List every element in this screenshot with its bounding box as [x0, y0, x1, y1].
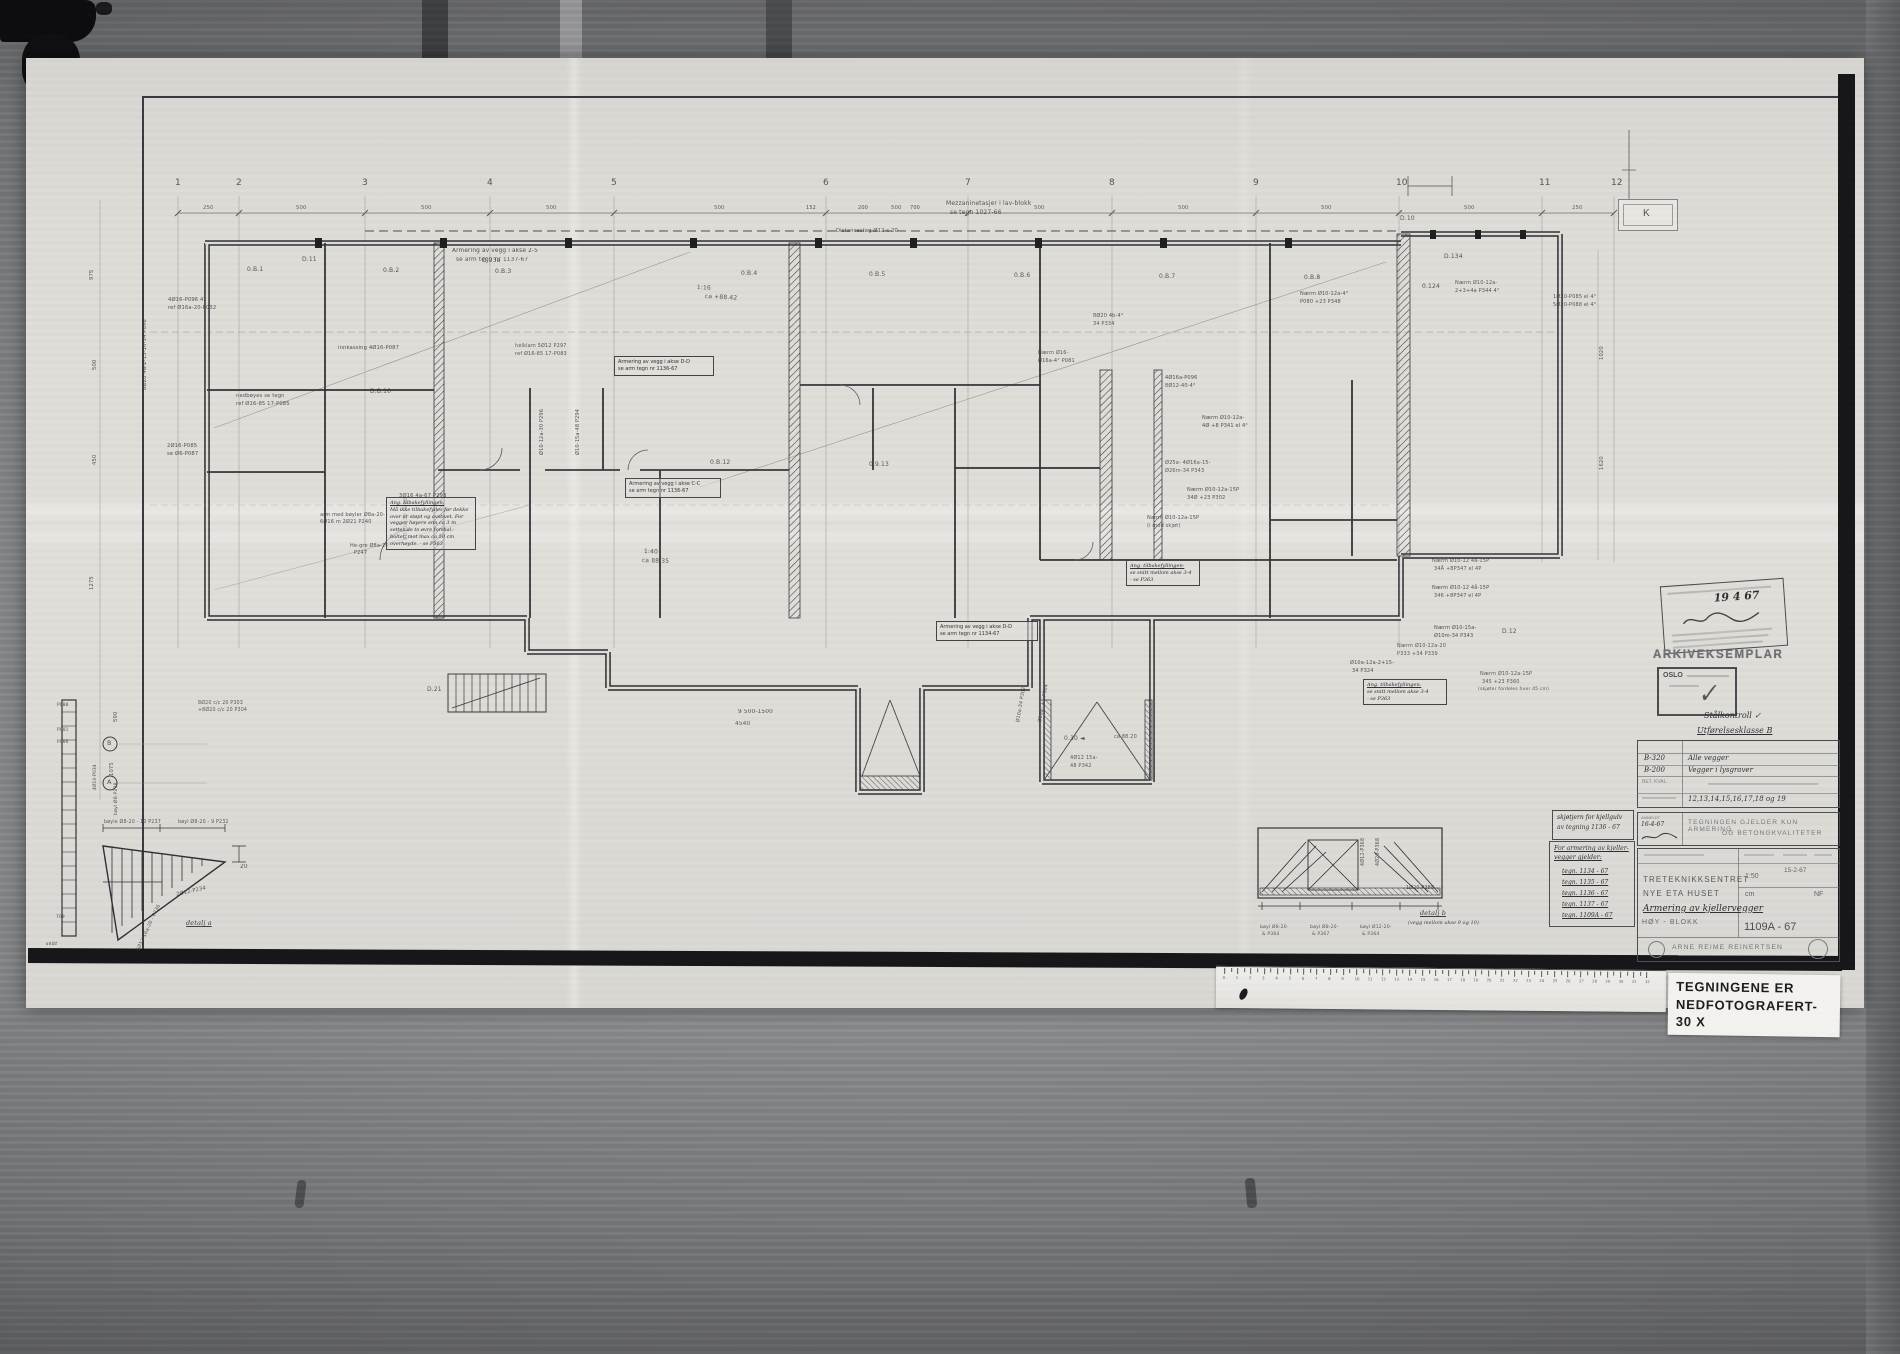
ruler-tick [1501, 971, 1502, 977]
annotation-text: 500 [93, 360, 98, 370]
ruler-number: 18 [1460, 977, 1465, 982]
ruler-number: 4 [1275, 975, 1277, 980]
photographed-blueprint: K Mezzaninetasjer i lav-blokkse tegn 102… [0, 0, 1900, 1354]
grid-dimension: 500 [1034, 205, 1045, 211]
ruler-number: 3 [1262, 975, 1264, 980]
ruler-number: 28 [1592, 978, 1597, 983]
boxed-note-line: bolter, mot max ca 50 cm [390, 534, 472, 541]
annotation-text: 4Ø12-P368 [1361, 838, 1366, 866]
grid-column-number: 6 [823, 178, 829, 188]
annotation-text: se Ø6-P087 [167, 452, 198, 457]
annotation-text: Ø25a- 4Ø16a-15- [1165, 461, 1211, 466]
boxed-note-line: se arm tegn nr 1136-67 [629, 488, 717, 495]
ruler-tick [1402, 970, 1403, 974]
annotation-text: detalj b [1420, 910, 1446, 917]
annotation-text: B [107, 740, 112, 747]
ruler-tick [1468, 970, 1469, 974]
boxed-note: Armering av vegg i akse D-Dse arm tegn n… [614, 356, 714, 376]
annotation-text: 1Ø20-P388 [1406, 886, 1434, 891]
annotation-text: D.B.10 [370, 389, 391, 395]
grid-column-number: 11 [1539, 178, 1550, 188]
annotation-text: 34Å +8P347 el 4P [1434, 567, 1482, 572]
ruler-tick [1257, 968, 1258, 972]
annotation-text: se arm tegn nr 1137-67 [456, 257, 528, 263]
annotation-text: 200 [858, 206, 868, 211]
grid-column-number: 5 [611, 178, 617, 188]
company-name: ARNE REIME REINERTSEN [1672, 944, 1783, 951]
ruler-tick [1614, 972, 1615, 976]
annotation-text: 8Ø20 4a-2-15-16-14 P098 [143, 319, 148, 390]
ruler-tick [1640, 972, 1641, 976]
ruler-number: 7 [1315, 976, 1317, 981]
ruler-number: 30 [1619, 979, 1624, 984]
subject-handwritten: Armering av kjellervegger [1643, 904, 1763, 914]
annotation-text: 6Ø16 m 2Ø21 P240 [320, 520, 372, 525]
grid-dimension: 500 [1321, 205, 1332, 211]
ruler-tick [1495, 971, 1496, 975]
ruler-tick [1528, 971, 1529, 977]
ruler-number: 27 [1579, 978, 1584, 983]
annotation-text: 1Ø20-P085 el 4° [1553, 295, 1596, 300]
revision-table: B-320 Alle vegger B-200 Vegger i lysgrav… [1637, 740, 1840, 808]
annotation-text: 48 P342 [1070, 764, 1092, 769]
ruler-tick [1237, 968, 1238, 974]
annotation-text: 0.B.5 [869, 272, 885, 278]
annotation-text: 8Ø20 c/c 20 P303 [198, 701, 243, 706]
annotation-text: helklam 5Ø12 P297 [515, 344, 567, 349]
annotation-text: D.12 [1502, 629, 1517, 635]
date-value: 15-2-67 [1784, 867, 1806, 874]
annotation-text: 4Ø16-P096 4° [168, 298, 206, 303]
block-name: HØY - BLOKK [1642, 919, 1699, 926]
side-note-2-title1: For armering av kjeller- [1554, 845, 1629, 852]
oslo-stamp-check: ✓ [1695, 678, 1720, 710]
annotation-text: 1620 [1600, 456, 1605, 470]
ruler-number: 15 [1421, 977, 1426, 982]
boxed-note: Ang. tilbakefyllingen.Må ikke tilbakefyl… [386, 497, 476, 550]
ruler-number: 24 [1539, 978, 1544, 983]
annotation-text: D.11 [302, 257, 317, 263]
annotation-text: 4540 [735, 721, 750, 727]
title-block: TRETEKNIKKSENTRET NYE ETA HUSET 1:50 cm … [1637, 848, 1840, 962]
annotation-text: (vegg mellom akse 9 og 10) [1408, 921, 1479, 926]
annotation-text: & P364 [1362, 933, 1379, 938]
scale-value: 1:50 [1745, 873, 1759, 880]
notice-row: ANMELDT 16-4-67 TEGNINGEN GJELDER KUN AR… [1637, 812, 1840, 846]
steel-control-note: Stålkontroll ✓ [1704, 711, 1761, 720]
ruler-tick [1567, 971, 1568, 977]
annotation-text: ca +88.42 [705, 294, 738, 302]
annotation-text: 0.B.12 [710, 460, 730, 466]
annotation-text: Nærm Ø10-15a- [1434, 626, 1476, 631]
annotation-text: 0.B.7 [1159, 274, 1175, 280]
annotation-text: P247 [354, 551, 367, 556]
annotation-text: 345 +23 P360 [1482, 680, 1520, 685]
annotation-text: se tegn 1027-66 [950, 210, 1002, 216]
boxed-note: Armering av vegg i akse C-Cse arm tegn n… [625, 478, 721, 498]
ruler-tick [1244, 968, 1245, 972]
scale-ruler: 0123456789101112131415161718192021222324… [1216, 966, 1666, 1012]
ruler-number: 6 [1302, 976, 1304, 981]
ruler-tick [1416, 970, 1417, 974]
ruler-tick [1449, 970, 1450, 976]
annotation-text: +8Ø20 c/c 20 P304 [198, 708, 247, 713]
annotation-text: Nærm Ø10-12a-20 [1397, 644, 1446, 649]
annotation-text: Ø10a-34 P302 [1016, 687, 1027, 723]
grid-column-number: 10 [1396, 178, 1407, 188]
grid-dimension: 500 [421, 205, 432, 211]
grid-dimension: 500 [714, 205, 725, 211]
annotation-text: nedbøyes se tegn [236, 394, 285, 399]
ruler-tick [1343, 969, 1344, 975]
annotation-text: 975 [90, 270, 95, 280]
ruler-tick [1310, 969, 1311, 973]
grid-column-number: 1 [175, 178, 181, 188]
ruler-number: 13 [1394, 977, 1399, 982]
grid-column-number: 8 [1109, 178, 1115, 188]
side-note-2-item: tegn. 1135 - 67 [1562, 877, 1613, 888]
ruler-tick [1607, 972, 1608, 978]
ruler-tick [1376, 969, 1377, 973]
side-note-box-2: For armering av kjeller- vegger gjelder:… [1549, 841, 1635, 927]
ruler-tick [1383, 969, 1384, 975]
ruler-tick [1264, 968, 1265, 974]
ruler-number: 8 [1328, 976, 1330, 981]
annotation-text: He-gre Ø8a-20 [350, 544, 389, 549]
annotation-text: 4Ø16a-P096 [1165, 376, 1197, 381]
annotation-text: 4Ø +8 P341 el 4° [1202, 424, 1248, 429]
annotation-text: 1075 [110, 762, 115, 776]
execution-class-note: Utførelsesklasse B [1697, 726, 1772, 735]
side-note-2-item: tegn. 1137 - 67 [1562, 899, 1613, 910]
notice-line2: OG BETONGKVALITETER [1722, 830, 1823, 837]
class-row2-value: Vegger i lysgraver [1688, 766, 1753, 774]
grid-column-number: 3 [362, 178, 368, 188]
annotation-text: Mezzaninetasjer i lav-blokk [946, 201, 1031, 207]
ruler-number: 11 [1368, 976, 1373, 981]
anmeldt-date: 16-4-67 [1641, 821, 1664, 828]
annotation-text: bøyl Ø12-20- [1360, 926, 1392, 931]
side-note-1-line1: skjøtjern for kjellgulv [1557, 814, 1622, 821]
annotation-text: 0.B.4 [741, 271, 757, 277]
annotation-text: 2Ø12-P234 [176, 886, 207, 898]
annotation-text: Ø10m-34 P343 [1434, 634, 1473, 639]
boxed-note: Armering av vegg i akse D-Dse arm tegn n… [936, 621, 1038, 641]
annotation-text: Nærm Ø16- [1038, 351, 1069, 356]
annotation-text: (skjøter fordeles hver 45 cm) [1478, 688, 1549, 693]
annotation-text: (i mod skjøt) [1147, 524, 1180, 529]
boxed-note-line: se snitt mellom akse 3-4 [1367, 689, 1443, 696]
ruler-tick [1284, 968, 1285, 972]
class-row1-code: B-320 [1644, 754, 1665, 762]
annotation-text: bøyl Ø8-20 - 9 P232 [178, 820, 229, 825]
annotation-text: 1275 [90, 576, 95, 590]
ruler-tick [1488, 970, 1489, 976]
annotation-text: 2+3+4a P344 4° [1455, 289, 1500, 294]
class-row2-code: B-200 [1644, 766, 1665, 774]
annotation-text: innkassing 4Ø16-P087 [338, 346, 399, 351]
boxed-note-line: vegger høyere enn ca 3 m [390, 520, 472, 527]
oslo-stamp-text: OSLO [1663, 672, 1683, 679]
ruler-tick [1475, 970, 1476, 976]
boxed-note-line: Ang. tilbakefyllingen. [390, 500, 472, 507]
ruler-mark [1238, 987, 1248, 1001]
annotation-text: Nærm Ø10-12a- [1455, 281, 1497, 286]
ruler-number: 14 [1407, 977, 1412, 982]
annotation-text: 1:40 [644, 549, 658, 556]
annotation-text: 5Ø20-P088 el 4° [1553, 303, 1596, 308]
side-note-1-line2: av tegning 1136 - 67 [1557, 824, 1620, 831]
unit-value: cm [1745, 891, 1754, 898]
boxed-note-line: se arm tegn nr 1136-67 [618, 366, 710, 373]
annotation-text: 6Ø12 16a-20 - P236 [136, 904, 162, 952]
annotation-text: Armering av vegg i akse 2-5 [452, 248, 538, 254]
side-note-2-title2: vegger gjelder: [1554, 854, 1602, 861]
annotation-text: arm med bøyler Ø8a-20- [320, 513, 385, 518]
annotation-text: A [107, 779, 112, 786]
annotation-text: 4Ø20-P368 [1376, 838, 1381, 866]
ruler-number: 17 [1447, 977, 1452, 982]
ruler-tick [1330, 969, 1331, 975]
ruler-tick [1363, 969, 1364, 973]
ruler-tick [1290, 969, 1291, 975]
annotation-text: 152 [806, 206, 816, 211]
ruler-tick [1633, 972, 1634, 978]
annotation-text: Ø16a-4° P081 [1038, 359, 1075, 364]
ruler-tick [1422, 970, 1423, 976]
boxed-note-line: - se P363 [1367, 696, 1443, 703]
ruler-tick [1534, 971, 1535, 975]
ruler-tick [1435, 970, 1436, 976]
ruler-tick [1627, 972, 1628, 976]
annotation-text: D.21 [427, 687, 442, 693]
ruler-tick [1231, 968, 1232, 972]
annotation-text: 0.B.8 [1304, 275, 1320, 281]
grid-dimension: 500 [296, 205, 307, 211]
date-stamp: 19 4 67 [1660, 578, 1788, 654]
ruler-tick [1356, 969, 1357, 975]
ruler-tick [1409, 970, 1410, 976]
annotation-text: 709 [56, 916, 65, 921]
ruler-tick [1389, 970, 1390, 974]
signature-squiggle [1681, 606, 1762, 630]
anmeldt-label: ANMELDT [1641, 815, 1660, 820]
grid-dimension: 250 [203, 205, 214, 211]
annotation-text: Nærm Ø10-12 4å-15P [1432, 586, 1489, 591]
firm-line1: TRETEKNIKKSENTRET [1643, 875, 1749, 884]
stamp-date-handwritten: 19 4 67 [1713, 588, 1760, 604]
grid-dimension: 500 [546, 205, 557, 211]
boxed-note-line: Må ikke tilbakefylles før dekke [390, 507, 472, 514]
annotation-text: Nærm Ø10-12a-4° [1300, 292, 1348, 297]
annotation-text: 34 P324 [1352, 669, 1374, 674]
ruler-tick [1442, 970, 1443, 974]
oslo-stamp: OSLO ✓ [1657, 667, 1737, 716]
ruler-tick [1594, 971, 1595, 977]
ruler-number: 31 [1632, 979, 1637, 984]
annotation-text: Ø10-15a-48 P294 [576, 409, 581, 455]
ruler-tick [1548, 971, 1549, 975]
reduction-label-line1: TEGNINGENE ER [1676, 978, 1834, 998]
firm-logo-left [1648, 941, 1665, 958]
ruler-number: 20 [1487, 977, 1492, 982]
ruler-tick [1647, 972, 1648, 978]
annotation-text: 20 [240, 864, 248, 870]
reduction-label: TEGNINGENE ER NEDFOTOGRAFERT- 30 X [1668, 973, 1841, 1037]
ruler-tick [1317, 969, 1318, 975]
boxed-note-line: Armering av vegg i akse C-C [629, 481, 717, 488]
annotation-text: & P364 [1262, 933, 1279, 938]
ruler-tick [1600, 972, 1601, 976]
annotation-text: 4Ø12 15a- [1070, 756, 1098, 761]
annotation-text: bøyl Ø8-P238 [115, 782, 120, 815]
annotation-text: 34Ø +23 P302 [1187, 496, 1225, 501]
annotation-text: 0.B.3 [495, 269, 511, 275]
annotation-text: 0.B.2 [383, 268, 399, 274]
ruler-tick [1541, 971, 1542, 977]
ruler-number: 19 [1473, 977, 1478, 982]
annotation-text: P080 +23 P348 [1300, 300, 1341, 305]
class-row1-value: Alle vegger [1688, 754, 1728, 762]
annotation-text: 8Ø20 4b-4° [1093, 314, 1123, 319]
ruler-tick [1429, 970, 1430, 974]
ruler-tick [1561, 971, 1562, 975]
annotation-text: 590 [114, 712, 119, 722]
grid-dimension: 500 [1464, 205, 1475, 211]
grid-dimension: 500 [1178, 205, 1189, 211]
firm-logo-right [1808, 939, 1828, 959]
ruler-tick [1323, 969, 1324, 973]
boxed-note-line: overhøyde. - se P363 [390, 541, 472, 548]
annotation-text: 450 [93, 455, 98, 465]
annotation-text: ref Ø16-85 17-P085 [236, 402, 290, 407]
annotation-text: Ø10-12a-30 P296 [540, 409, 545, 455]
ruler-tick [1303, 969, 1304, 975]
side-note-2-item: tegn. 1134 - 67 [1562, 866, 1613, 877]
grid-column-number: 9 [1253, 178, 1259, 188]
boxed-note-line: settes de to øvre forskal.- [390, 527, 472, 534]
annotation-text: Nærm Ø10-12a-15P [1187, 488, 1239, 493]
annotation-text: 0.9.13 [869, 462, 889, 468]
ruler-number: 16 [1434, 977, 1439, 982]
annotation-text: P088 [57, 704, 69, 709]
annotation-text: 2Ø16-P085 [167, 444, 197, 449]
ruler-number: 0 [1223, 975, 1225, 980]
ruler-number: 10 [1355, 976, 1360, 981]
annotation-text: Nærm Ø10-12a- [1202, 416, 1244, 421]
ruler-tick [1620, 972, 1621, 978]
ruler-number: 25 [1553, 978, 1558, 983]
annotation-text: D.10 [1400, 216, 1415, 222]
ruler-tick [1581, 971, 1582, 977]
annotation-text: P081 [57, 729, 69, 734]
ruler-tick [1574, 971, 1575, 975]
ruler-number: 22 [1513, 978, 1518, 983]
ruler-tick [1270, 968, 1271, 972]
ruler-tick [1350, 969, 1351, 973]
annotation-text: ref Ø16-85 17-P083 [515, 352, 567, 357]
annotation-text: 346 +8P347 el 4P [1434, 594, 1481, 599]
boxed-note: Ang. tilbakefyllingen.se snitt mellom ak… [1363, 679, 1447, 705]
side-note-2-items: tegn. 1134 - 67tegn. 1135 - 67tegn. 1136… [1562, 866, 1613, 921]
side-note-2-item: tegn. 1136 - 67 [1562, 888, 1613, 899]
annotation-text: Ø10a-12a-2+15- [1350, 661, 1394, 666]
boxed-note-line: Armering av vegg i akse D-D [618, 359, 710, 366]
ruler-tick [1336, 969, 1337, 973]
ruler-tick [1482, 970, 1483, 974]
ruler-tick [1508, 971, 1509, 975]
annotation-text: bøyl Ø8-20- [1310, 926, 1339, 931]
annotation-text: ref Ø16a-20-P032 [168, 306, 216, 311]
boxed-note-line: Armering av vegg i akse D-D [940, 624, 1034, 631]
annotation-text: D.134 [1444, 254, 1463, 260]
boxed-note-line: Ang. tilbakefyllingen- [1130, 563, 1196, 570]
annotation-text: 1020 [1600, 346, 1605, 360]
annotation-text: Nærm Ø10-12a-15P [1147, 516, 1199, 521]
ruler-number: 23 [1526, 978, 1531, 983]
ruler-tick [1455, 970, 1456, 974]
boxed-note: Ang. tilbakefyllingen-se snitt mellom ak… [1126, 560, 1200, 586]
annotation-text: Nærm Ø10-12a-15P [1480, 672, 1532, 677]
ruler-number: 2 [1249, 975, 1251, 980]
ruler-number: 5 [1289, 976, 1291, 981]
annotation-text: Distansestag Ø12 c 20 [836, 229, 898, 234]
annotation-text: 1:16 [697, 285, 711, 292]
grid-column-number: 4 [487, 178, 493, 188]
ruler-number: 1 [1236, 975, 1238, 980]
ruler-number: 12 [1381, 976, 1386, 981]
ruler-tick [1251, 968, 1252, 974]
annotation-text: 4Ø10-P034 [94, 764, 99, 790]
ruler-tick [1521, 971, 1522, 975]
annotation-text: detalj a [186, 920, 212, 927]
annotation-text: 0.B.1 [247, 267, 263, 273]
ruler-tick [1369, 969, 1370, 975]
firm-line2: NYE ETA HUSET [1643, 889, 1720, 898]
annotation-text: P086 [57, 741, 69, 746]
boxed-note-line: se snitt mellom akse 3-4 [1130, 570, 1196, 577]
ruler-tick [1297, 969, 1298, 973]
concrete-quality-label: BET. KVAL. [1642, 779, 1668, 785]
annotation-text: & P367 [1312, 933, 1329, 938]
annotation-text: ca 88.20 [1114, 735, 1137, 740]
annotation-text: 0.B.6 [1014, 273, 1030, 279]
annotation-text: ca 88.35 [642, 558, 669, 565]
side-note-2-item: tegn. 1109A - 67 [1562, 910, 1613, 921]
ruler-tick [1224, 968, 1225, 974]
annotation-text: snitt [46, 943, 57, 948]
ruler-number: 21 [1500, 978, 1505, 983]
ruler-tick [1462, 970, 1463, 976]
grid-column-number: 2 [236, 178, 242, 188]
annotation-text: Ø10a- +5 P304 [1038, 684, 1050, 723]
arkiveksemplar-stamp: ARKIVEKSEMPLAR [1653, 649, 1783, 661]
annotation-text: bøyle Ø8-20 - 10 P237 [104, 820, 161, 825]
side-note-box-1: skjøtjern for kjellgulv av tegning 1136 … [1552, 810, 1634, 840]
ruler-tick [1515, 971, 1516, 977]
boxed-note-line: - se P363 [1130, 577, 1196, 584]
ruler-tick [1554, 971, 1555, 977]
applies-to-row-value: 12,13,14,15,16,17,18 og 19 [1688, 795, 1786, 803]
ruler-number: 32 [1645, 979, 1650, 984]
ruler-number: 29 [1605, 979, 1610, 984]
grid-dimension: 250 [1572, 205, 1583, 211]
boxed-note-line: over er støpt og avstivet. For [390, 514, 472, 521]
grid-dimension: 500 [891, 205, 902, 211]
ruler-number: 26 [1566, 978, 1571, 983]
annotation-text: Nærm Ø10-12 4å-15P [1432, 559, 1489, 564]
annotation-text: 9 500-1500 [738, 709, 773, 715]
